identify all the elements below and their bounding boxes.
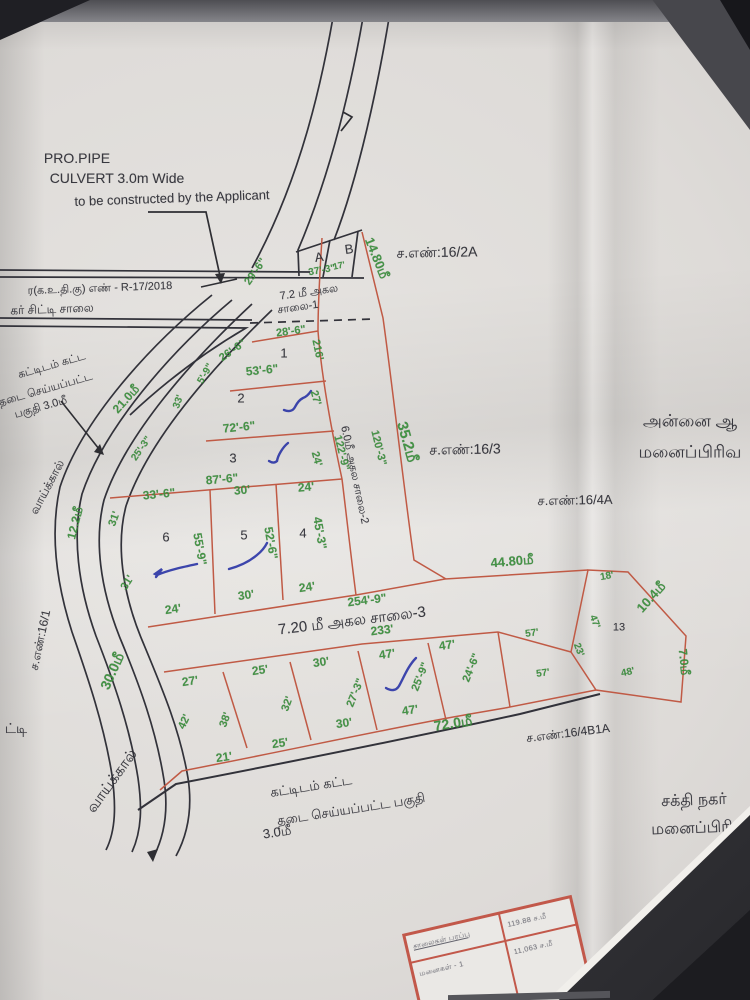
dim-55-9: 55'-9" (191, 532, 208, 566)
dim-21: 21' (215, 750, 233, 764)
dim-35-2m: 35.2மீ (394, 420, 420, 464)
dim-47-a: 47' (378, 647, 396, 661)
dim-28-6: 28'-6" (275, 324, 306, 339)
dim-30-t5: 30' (233, 483, 250, 496)
photo-edge-strip-top (0, 0, 750, 22)
survey-16-3: ச.எண்:16/3 (429, 441, 501, 456)
survey-16-4b1a: ச.எண்:16/4B1A (526, 722, 611, 744)
survey-16-1: ச.எண்:16/1 (28, 609, 52, 671)
restricted-bottom-line2: தடை செய்யப்பட்ட பகுதி (276, 791, 426, 827)
dim-30-0m: 30.0மீ (98, 651, 126, 692)
dim-57-b: 57' (536, 668, 551, 680)
dim-47-c: 47' (401, 703, 419, 717)
dim-33: 33' (172, 394, 186, 410)
dim-72-6: 72'-6" (222, 419, 256, 434)
plot-b: B (344, 242, 354, 256)
plot-a: A (314, 250, 324, 264)
note-constructed: to be constructed by the Applicant (74, 188, 269, 208)
canal-label-upper: வாய்க்கால் (28, 458, 67, 516)
dim-32: 32' (280, 695, 295, 713)
dim-24-6: 24'-6" (461, 652, 482, 684)
note-pro-pipe: PRO.PIPE (44, 151, 110, 165)
dim-120-3: 120'-3" (368, 429, 387, 467)
dim-52-6: 52'-6" (262, 526, 279, 560)
plot-4: 4 (299, 527, 306, 540)
dim-72-0m: 72.0மீ (433, 713, 473, 733)
dim-24-r: 24' (309, 450, 323, 467)
dim-31-b: 31' (119, 574, 136, 592)
dim-53-6: 53'-6" (245, 362, 279, 377)
restricted-bottom-line3: 3.0மீ (262, 823, 292, 840)
dim-48: 48' (620, 667, 635, 680)
dim-44-80m: 44.80மீ (490, 553, 534, 570)
road2-name: 6.0மீ அகல சாலை-2 (338, 425, 370, 525)
canal-label-lower: வாய்க்கால் (84, 746, 140, 815)
dim-31-a: 31' (107, 510, 122, 528)
dim-30-b5: 30' (237, 588, 255, 602)
dim-5-9: 5'-9" (196, 362, 215, 386)
dim-57-a: 57' (525, 628, 540, 640)
edge-text-tti: ட்டி (5, 721, 27, 735)
dim-23: 23' (571, 642, 585, 658)
restricted-bottom-line1: கட்டிடம் கட்ட (269, 773, 352, 799)
dim-25-b: 25' (251, 663, 269, 677)
dim-30-c: 30' (312, 655, 330, 669)
dim-216: 216' (309, 339, 324, 362)
dim-47-13: 47' (587, 614, 601, 630)
survey-16-2a: ச.எண்:16/2A (396, 244, 477, 259)
dim-30-d: 30' (335, 716, 353, 730)
dim-24-b4: 24' (298, 580, 316, 594)
dim-26-6: 26'-6" (218, 338, 249, 364)
dim-45-3: 45'-3" (311, 516, 328, 550)
dim-42: 42' (177, 713, 193, 731)
dim-47-b: 47' (438, 638, 456, 652)
dim-33-6: 33'-6" (142, 486, 176, 501)
dim-25-3: 25'-3" (130, 435, 154, 463)
road3-name: 7.20 மீ அகல சாலை-3 (277, 604, 426, 637)
subdiv-right-line2: மனைப்பிரிவ (639, 444, 742, 461)
dim-25-9: 25'-9" (410, 661, 431, 693)
plot-13: 13 (613, 623, 625, 634)
plot-1: 1 (280, 347, 287, 360)
dim-25-c: 25' (271, 736, 289, 750)
dim-18: 18' (599, 571, 614, 583)
dim-27-r: 27' (308, 389, 322, 406)
subdiv-sakthi-line2: மனைப்பிரி (651, 820, 733, 839)
dim-14-80m: 14.80மீ (363, 236, 391, 281)
dim-21-0m: 21.0மீ (110, 383, 141, 416)
dim-24-t4: 24' (297, 480, 314, 493)
subdiv-right-line1: அன்னை ஆ (643, 413, 737, 430)
survey-16-4a: ச.எண்:16/4A (537, 493, 612, 507)
map-annotations: PRO.PIPECULVERT 3.0m Wideto be construct… (0, 0, 750, 1000)
dim-12-2m: 12.2மீ (65, 506, 85, 541)
dim-233: 233' (370, 623, 394, 638)
city-road-label: கர் சிட்டி சாலை (10, 302, 94, 317)
note-culvert: CULVERT 3.0m Wide (50, 171, 185, 185)
survey-plan-photo: PRO.PIPECULVERT 3.0m Wideto be construct… (0, 0, 750, 1000)
dim-24-b6: 24' (164, 602, 182, 616)
dim-254-9: 254'-9" (347, 592, 387, 609)
dim-17: 17' (332, 260, 346, 271)
subdiv-sakthi-line1: சக்தி நகர் (661, 792, 727, 810)
plot-2: 2 (237, 392, 244, 405)
dim-29-6: 29'-6" (243, 257, 269, 288)
plot-3: 3 (229, 452, 236, 465)
dim-7-0m: 7.0மீ (677, 648, 692, 675)
dim-27-b: 27' (181, 674, 199, 688)
dim-10-4m: 10.4மீ (634, 579, 668, 614)
plot-6: 6 (162, 531, 169, 544)
approval-ref: ர(க.உ.தி.கு) எண் - R-17/2018 (28, 281, 173, 297)
dim-38: 38' (218, 711, 233, 729)
dim-27-3: 27'-3" (345, 677, 366, 709)
plot-5: 5 (240, 529, 247, 542)
